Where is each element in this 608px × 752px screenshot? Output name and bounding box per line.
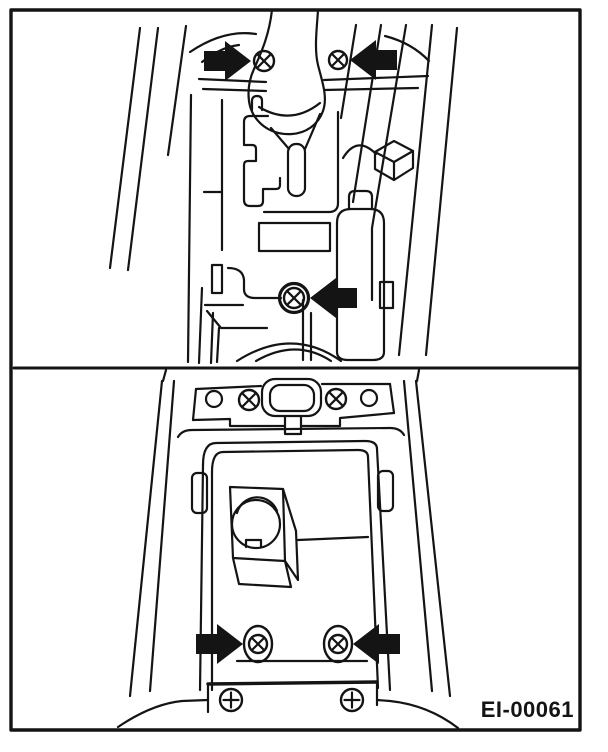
arrow-marker-icon bbox=[353, 624, 400, 664]
screw-icon bbox=[329, 51, 347, 69]
screw-icon bbox=[280, 284, 309, 313]
screw-icon bbox=[326, 389, 346, 409]
bracket-hole bbox=[206, 391, 222, 407]
figure-canvas bbox=[0, 0, 608, 752]
latch-tab bbox=[285, 416, 301, 434]
shift-lever-stem bbox=[288, 144, 305, 196]
bottom-panel-markers bbox=[196, 389, 400, 711]
indicator-plate bbox=[259, 223, 330, 251]
console-side-lines-left bbox=[110, 26, 213, 363]
screw-icon bbox=[239, 390, 259, 410]
connector-cube bbox=[343, 141, 413, 180]
arrow-marker-icon bbox=[196, 624, 243, 664]
bottom-panel-illustration bbox=[118, 370, 458, 728]
arrow-marker-icon bbox=[350, 40, 397, 80]
top-panel-markers bbox=[204, 40, 397, 318]
screw-icon bbox=[244, 626, 272, 662]
screw-icon bbox=[324, 626, 352, 662]
console-lower-left-structure bbox=[205, 265, 281, 362]
hinge-pin-left bbox=[192, 473, 207, 513]
latch-opening-inner bbox=[270, 385, 314, 411]
console-base-curves bbox=[118, 700, 458, 728]
box-floor-seam bbox=[298, 537, 368, 540]
service-manual-illustration bbox=[0, 0, 608, 752]
phillips-screw-icon bbox=[341, 689, 363, 711]
arrow-marker-icon bbox=[310, 278, 357, 318]
bracket-hole bbox=[361, 390, 377, 406]
phillips-screw-icon bbox=[220, 689, 242, 711]
top-panel-illustration bbox=[110, 10, 457, 363]
shift-lever-boot bbox=[249, 10, 325, 196]
figure-border bbox=[11, 10, 580, 730]
console-outer-walls bbox=[130, 370, 450, 696]
arrow-marker-icon bbox=[204, 41, 251, 81]
figure-code-label: EI-00061 bbox=[481, 699, 574, 721]
hinge-bracket bbox=[193, 379, 394, 434]
cup-holder-box bbox=[230, 487, 368, 587]
